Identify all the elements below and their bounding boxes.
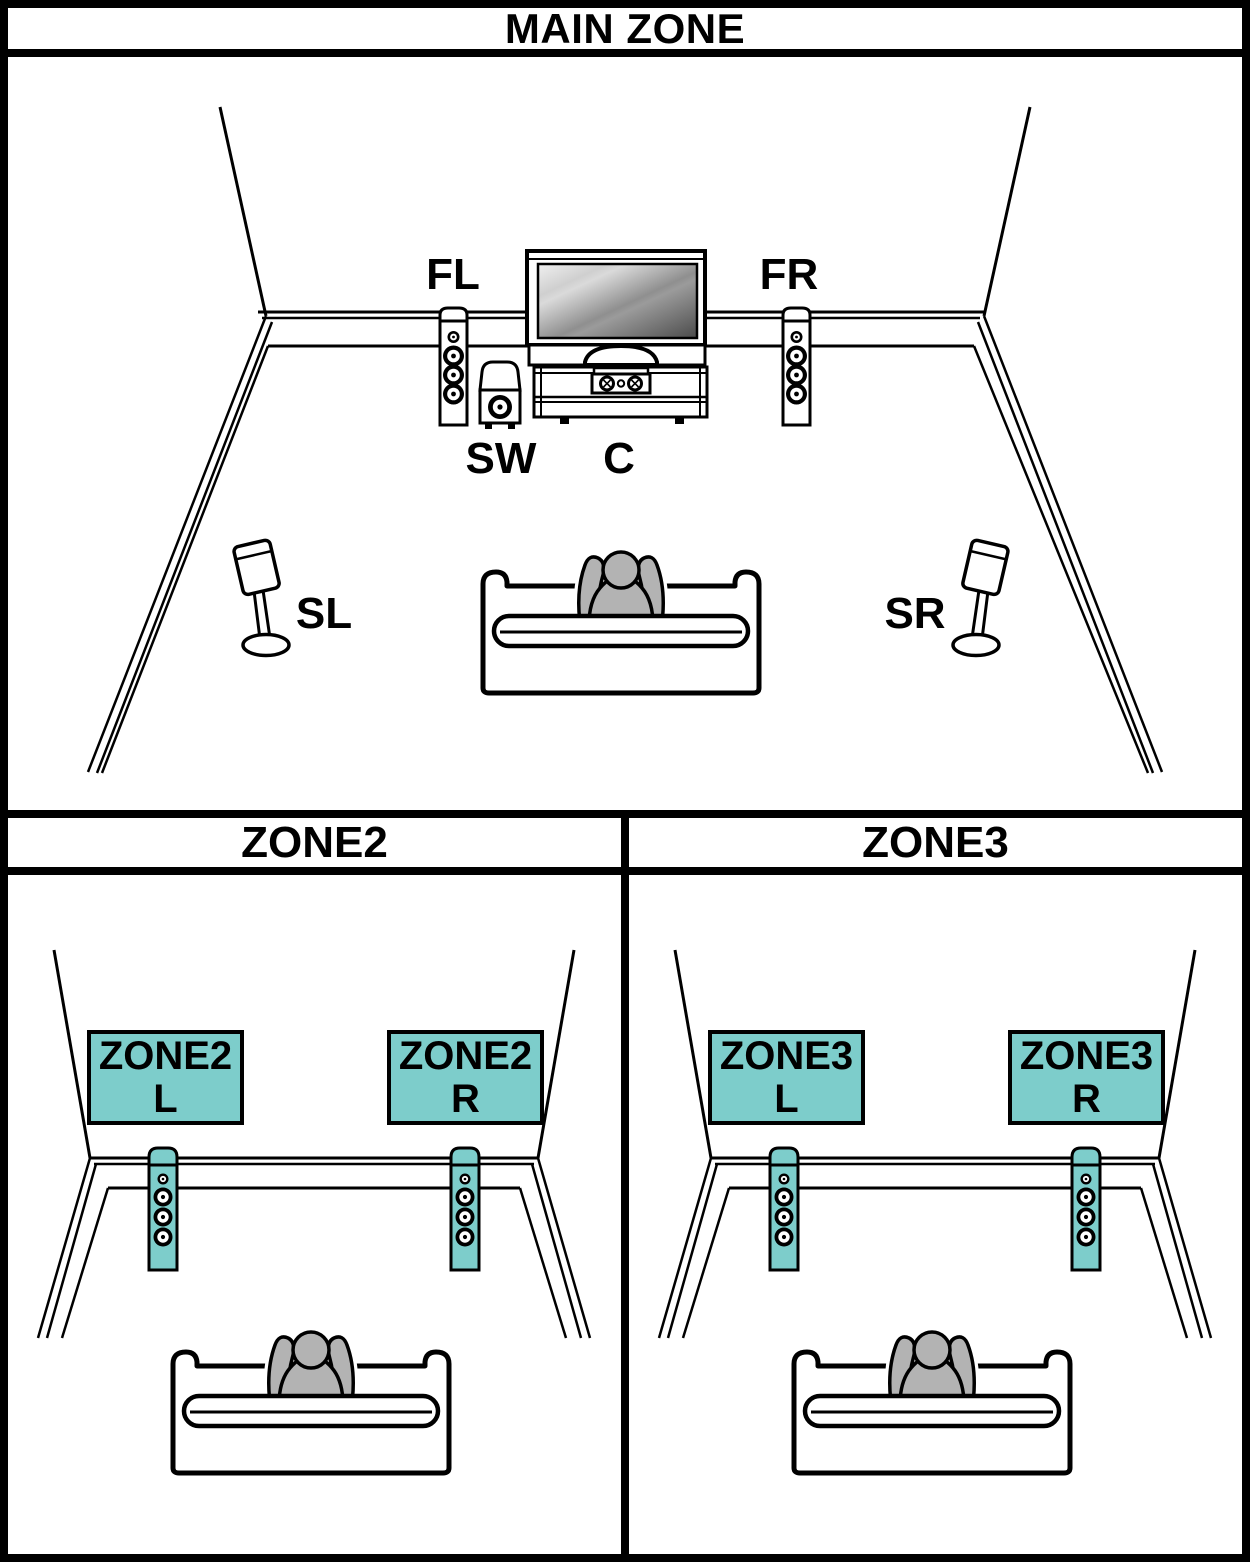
zone2-right-speaker-tag: ZONE2 R — [387, 1030, 544, 1125]
divider — [8, 867, 1242, 875]
tv-screen — [538, 264, 697, 338]
main-zone-room: FL FR SW C SL SR — [8, 57, 1242, 810]
zone3-right-speaker-tag: ZONE3 R — [1008, 1030, 1165, 1125]
tv — [527, 251, 705, 365]
zone2-sofa — [173, 1332, 449, 1473]
label-front-left: FL — [393, 251, 513, 299]
zone-rooms: ZONE2 L ZONE2 R — [8, 875, 1242, 1554]
label-surround-left: SL — [264, 590, 384, 638]
label-surround-right: SR — [855, 590, 975, 638]
divider — [621, 818, 629, 868]
zone3-room: ZONE3 L ZONE3 R — [629, 875, 1242, 1554]
main-zone-header: MAIN ZONE — [8, 8, 1242, 57]
zone2-room: ZONE2 L ZONE2 R — [8, 875, 621, 1554]
zone2-right-speaker-graphic — [451, 1148, 479, 1270]
label-center: C — [559, 435, 679, 483]
zone3-left-speaker-graphic — [770, 1148, 798, 1270]
zone3-right-speaker-graphic — [1072, 1148, 1100, 1270]
zone3-sofa — [794, 1332, 1070, 1473]
zone2-title: ZONE2 — [241, 818, 388, 868]
zone2-header: ZONE2 — [8, 818, 621, 868]
diagram-frame: MAIN ZONE — [0, 0, 1250, 1562]
front-left-speaker-graphic — [440, 308, 467, 425]
zone3-room-graphic — [629, 875, 1242, 1554]
zone-headers: ZONE2 ZONE3 — [8, 818, 1242, 867]
label-front-right: FR — [729, 251, 849, 299]
zone3-header: ZONE3 — [629, 818, 1242, 868]
zone3-left-speaker-tag: ZONE3 L — [708, 1030, 865, 1125]
zone2-room-graphic — [8, 875, 621, 1554]
room-walls — [659, 950, 1211, 1338]
room-walls — [38, 950, 590, 1338]
zone3-title: ZONE3 — [862, 818, 1009, 868]
front-right-speaker-graphic — [783, 308, 810, 425]
divider — [8, 810, 1242, 818]
zone2-left-speaker-graphic — [149, 1148, 177, 1270]
subwoofer-graphic — [480, 362, 520, 429]
main-sofa — [483, 552, 759, 693]
label-subwoofer: SW — [441, 435, 561, 483]
center-speaker-graphic — [592, 368, 650, 393]
zone2-left-speaker-tag: ZONE2 L — [87, 1030, 244, 1125]
main-zone-title: MAIN ZONE — [505, 5, 745, 53]
tv-cabinet — [534, 367, 707, 424]
tv-foot — [585, 346, 657, 365]
divider — [621, 875, 629, 1554]
